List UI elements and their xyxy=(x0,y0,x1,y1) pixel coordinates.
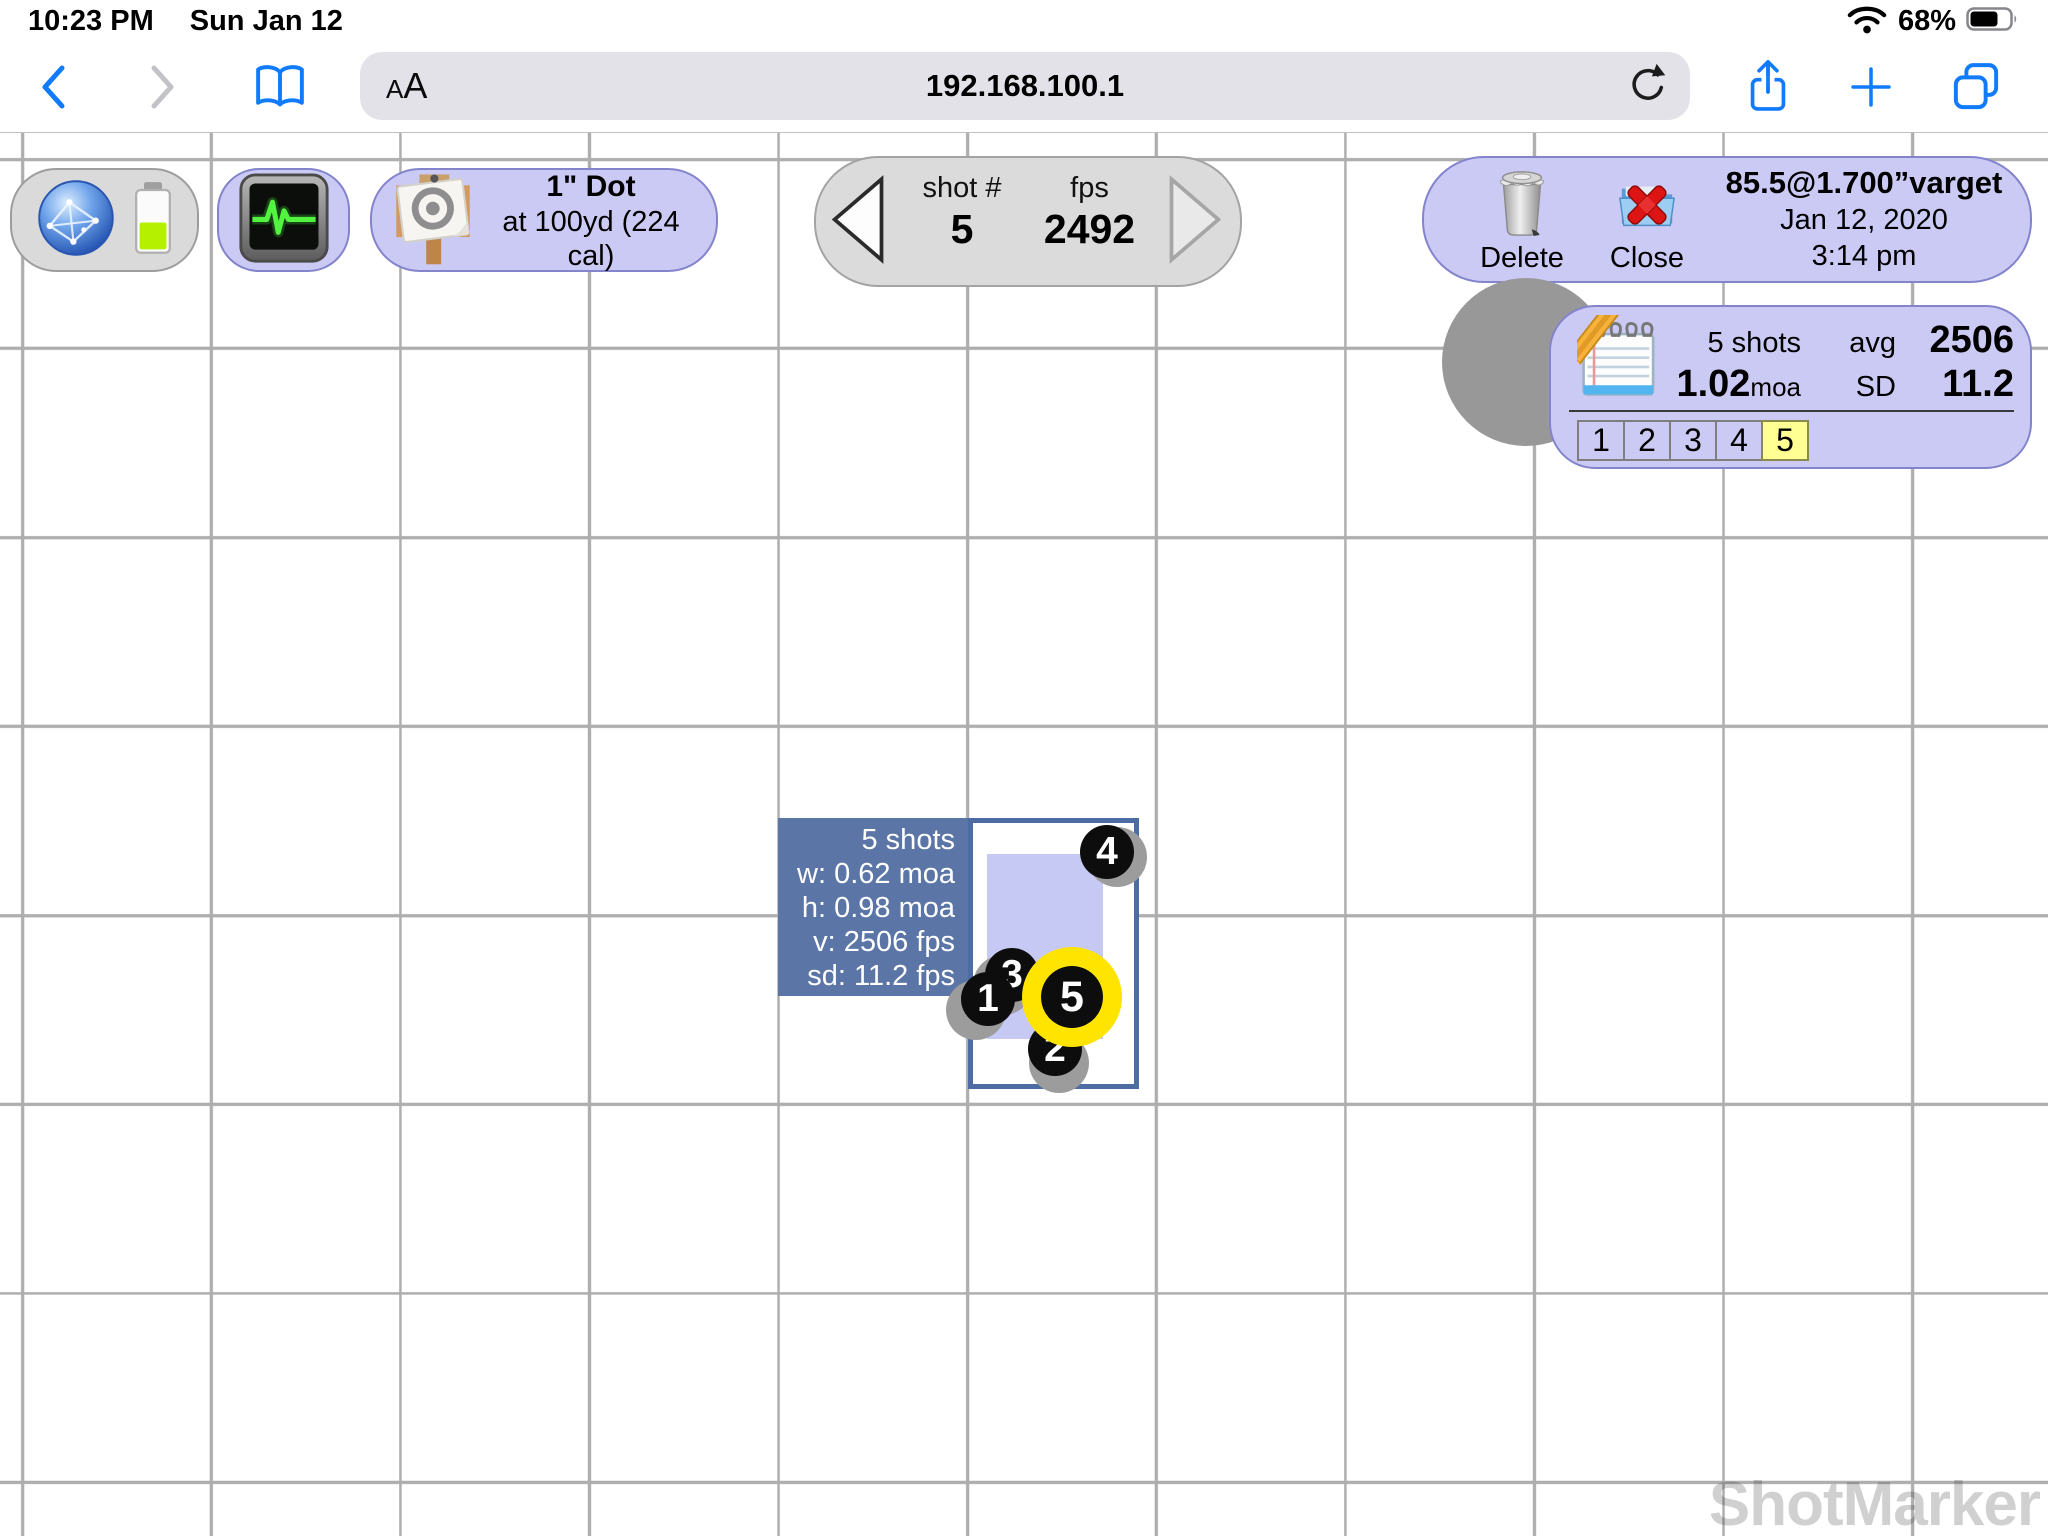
delete-label: Delete xyxy=(1480,242,1564,275)
notes-icon[interactable] xyxy=(1577,315,1661,408)
sd-label: SD xyxy=(1801,371,1896,404)
shot-tab-5[interactable]: 5 xyxy=(1761,420,1809,461)
session-load-name: 85.5@1.700”varget xyxy=(1716,164,2012,202)
clock-time: 10:23 PM xyxy=(28,5,154,38)
group-stats-box: 5 shotsw: 0.62 moah: 0.98 moav: 2506 fps… xyxy=(778,818,968,996)
forward-button[interactable] xyxy=(146,63,178,111)
stats-divider xyxy=(1569,410,2014,412)
shot-marker-4[interactable]: 4 xyxy=(1080,825,1134,879)
monitor-icon xyxy=(238,172,330,269)
clock-date: Sun Jan 12 xyxy=(190,5,343,38)
address-bar[interactable]: AA 192.168.100.1 xyxy=(360,52,1690,120)
shots-count: 5 shots xyxy=(1669,327,1801,360)
string-stats-panel: 5 shots avg 2506 1.02moa SD 11.2 12345 xyxy=(1549,305,2032,469)
target-view: 1" Dot at 100yd (224 cal) shot # 5 fps 2… xyxy=(0,133,2048,1536)
live-monitor-button[interactable] xyxy=(217,168,350,272)
next-shot-button[interactable] xyxy=(1164,171,1224,272)
device-status-button[interactable] xyxy=(10,168,199,272)
close-label: Close xyxy=(1610,242,1684,275)
session-date: Jan 12, 2020 xyxy=(1716,202,2012,238)
session-time: 3:14 pm xyxy=(1716,238,2012,274)
fps-label: fps xyxy=(1027,172,1152,205)
status-bar: 10:23 PM Sun Jan 12 68% xyxy=(0,0,2048,42)
group-stat-line: h: 0.98 moa xyxy=(778,891,955,925)
group-stat-line: w: 0.62 moa xyxy=(778,857,955,891)
battery-percent: 68% xyxy=(1898,5,1956,38)
group-stat-line: 5 shots xyxy=(778,823,955,857)
target-name: 1" Dot xyxy=(482,168,700,205)
shot-plot: 43125 xyxy=(968,818,1139,1089)
target-select-button[interactable]: 1" Dot at 100yd (224 cal) xyxy=(370,168,718,272)
sd-value: 11.2 xyxy=(1896,363,2014,406)
session-header: Delete Close 85.5@1.700”varget Jan 1 xyxy=(1422,156,2032,283)
close-session-button[interactable]: Close xyxy=(1592,158,1702,281)
wifi-icon xyxy=(1846,3,1888,40)
shot-tab-3[interactable]: 3 xyxy=(1669,420,1717,461)
group-stat-line: v: 2506 fps xyxy=(778,925,955,959)
delete-session-button[interactable]: Delete xyxy=(1464,158,1580,281)
group-stat-line: sd: 11.2 fps xyxy=(778,959,955,993)
avg-label: avg xyxy=(1801,327,1896,360)
target-battery-icon xyxy=(130,181,176,260)
reload-button[interactable] xyxy=(1624,62,1668,111)
browser-toolbar: AA 192.168.100.1 xyxy=(0,42,2048,133)
shot-marker-5: 5 xyxy=(1041,966,1103,1028)
back-button[interactable] xyxy=(38,63,70,111)
shot-number-label: shot # xyxy=(912,172,1012,205)
fps-value: 2492 xyxy=(1027,205,1152,253)
group-size: 1.02moa xyxy=(1669,363,1801,406)
shot-tab-1[interactable]: 1 xyxy=(1577,420,1625,461)
close-folder-icon xyxy=(1616,175,1678,242)
shot-marker-5-selected[interactable]: 5 xyxy=(1022,947,1122,1047)
shot-marker-1[interactable]: 1 xyxy=(961,972,1015,1026)
shot-number-value: 5 xyxy=(912,205,1012,253)
shot-navigator: shot # 5 fps 2492 xyxy=(814,156,1242,287)
network-globe-icon xyxy=(34,176,118,265)
shot-tab-4[interactable]: 4 xyxy=(1715,420,1763,461)
battery-icon xyxy=(1966,5,2020,38)
previous-shot-button[interactable] xyxy=(829,171,889,272)
target-frame-icon xyxy=(384,169,482,272)
shot-tab-2[interactable]: 2 xyxy=(1623,420,1671,461)
avg-fps: 2506 xyxy=(1896,319,2014,362)
session-info: 85.5@1.700”varget Jan 12, 2020 3:14 pm xyxy=(1716,164,2012,274)
shots-layer: 43125 xyxy=(968,818,1139,1089)
url-text: 192.168.100.1 xyxy=(360,68,1690,104)
tabs-button[interactable] xyxy=(1948,59,2004,115)
shot-tab-strip: 12345 xyxy=(1577,420,1809,461)
shotmarker-watermark: ShotMarker xyxy=(1709,1469,2040,1540)
share-button[interactable] xyxy=(1742,57,1794,117)
target-distance: at 100yd (224 cal) xyxy=(482,205,700,273)
new-tab-button[interactable] xyxy=(1846,62,1896,112)
trash-icon xyxy=(1492,169,1552,242)
bookmarks-icon[interactable] xyxy=(252,59,308,115)
